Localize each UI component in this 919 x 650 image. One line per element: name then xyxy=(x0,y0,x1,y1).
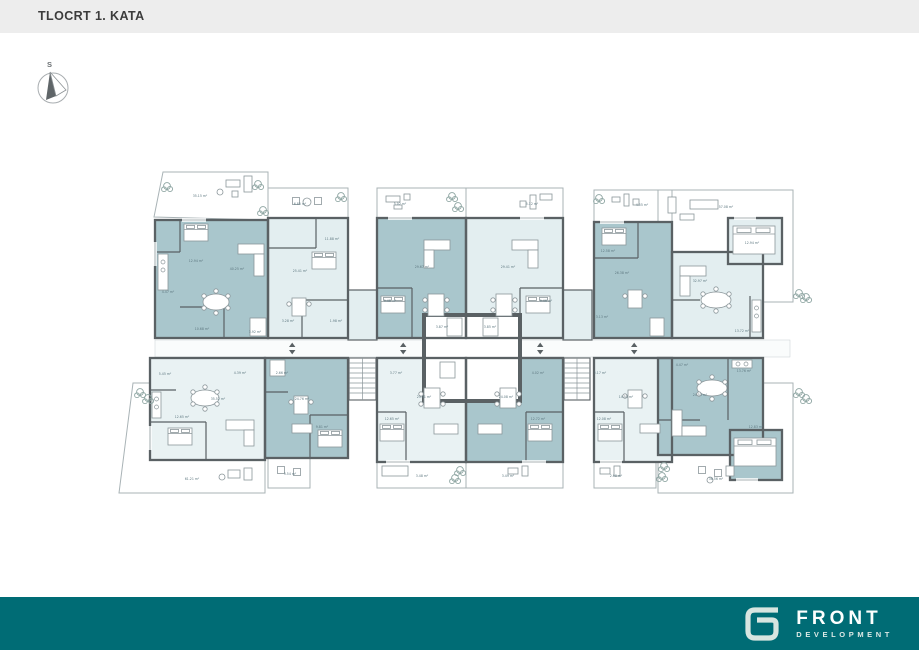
area-label: 6.85 m² xyxy=(294,202,307,206)
balcony-b4 xyxy=(466,462,563,488)
area-label: 4.55 m² xyxy=(636,203,649,207)
area-label: 36.56 m² xyxy=(709,477,724,481)
area-label: 57.08 m² xyxy=(719,205,734,209)
balcony-b5 xyxy=(594,462,656,488)
stairwell-right xyxy=(564,358,590,400)
area-label: 9.46 m² xyxy=(540,299,553,303)
north-compass: S xyxy=(38,60,68,103)
area-label: 35.15 m² xyxy=(193,194,208,198)
sofa xyxy=(434,424,458,434)
area-label: 40.25 m² xyxy=(230,267,245,271)
area-label: 26.38 m² xyxy=(615,271,630,275)
area-label: 32.97 m² xyxy=(693,279,708,283)
area-label: 12.83 m² xyxy=(749,425,764,429)
sofa xyxy=(292,424,312,433)
area-label: 3.87 m² xyxy=(436,325,449,329)
area-label: 3.49 m² xyxy=(502,474,515,478)
bed xyxy=(602,228,626,245)
area-label: 12.94 m² xyxy=(189,259,204,263)
compass-label: S xyxy=(47,60,52,69)
area-label: 11.88 m² xyxy=(325,237,340,241)
area-label: 13.76 m² xyxy=(737,369,752,373)
page-header: TLOCRT 1. KATA xyxy=(0,0,919,33)
bed xyxy=(733,226,775,254)
area-label: 9.48 m² xyxy=(384,299,397,303)
bed xyxy=(380,424,404,441)
area-label: 3.54 m² xyxy=(284,472,297,476)
kitchen xyxy=(732,360,752,368)
bed xyxy=(168,428,192,445)
area-label: 1.98 m² xyxy=(330,319,343,323)
area-label: 10.68 m² xyxy=(195,327,210,331)
area-label: 29.41 m² xyxy=(501,265,516,269)
bed xyxy=(598,424,622,441)
sofa xyxy=(640,424,660,433)
area-label: 12.65 m² xyxy=(175,415,190,419)
kitchen xyxy=(158,254,168,290)
floorplan-page: TLOCRT 1. KATA xyxy=(0,0,919,650)
area-label: 3.48 m² xyxy=(416,474,429,478)
area-label: 9.81 m² xyxy=(316,425,329,429)
page-title: TLOCRT 1. KATA xyxy=(38,0,145,33)
stairwell-left xyxy=(349,358,376,400)
area-label: 61.21 m² xyxy=(185,477,200,481)
area-label: 5.45 m² xyxy=(159,372,172,376)
area-label: 24.08 m² xyxy=(499,395,514,399)
area-label: 5.02 m² xyxy=(394,202,407,206)
area-label: 24.76 m² xyxy=(295,397,310,401)
balcony-a5 xyxy=(594,190,672,222)
area-label: 12.94 m² xyxy=(745,241,760,245)
area-label: 24.53 m² xyxy=(693,393,708,397)
area-label: 35.52 m² xyxy=(211,397,226,401)
footer-bar: FRONT DEVELOPMENT xyxy=(0,597,919,650)
area-label: 14.55 m² xyxy=(619,395,634,399)
floorplan-drawing: S xyxy=(0,0,919,650)
logo-monogram-icon xyxy=(743,605,783,643)
balcony-a4 xyxy=(466,188,563,218)
area-label: 3.28 m² xyxy=(282,319,295,323)
area-label: 3.85 m² xyxy=(484,325,497,329)
area-label: 12.08 m² xyxy=(597,417,612,421)
area-label: 12.58 m² xyxy=(601,249,616,253)
area-label: 2.98 m² xyxy=(610,474,623,478)
bed xyxy=(734,438,776,466)
area-label: 4.47 m² xyxy=(676,363,689,367)
company-logo: FRONT DEVELOPMENT xyxy=(743,605,893,643)
area-label: 25.41 m² xyxy=(293,269,308,273)
bed xyxy=(184,224,208,241)
sofa xyxy=(478,424,502,434)
area-label: 4.47 m² xyxy=(162,290,175,294)
connector-right-top xyxy=(563,290,592,340)
brand-name: FRONT xyxy=(796,609,893,628)
area-label: 3.13 m² xyxy=(596,315,609,319)
brand-text: FRONT DEVELOPMENT xyxy=(796,609,893,639)
bed xyxy=(528,424,552,441)
area-label: 12.72 m² xyxy=(531,417,546,421)
area-label: 3.92 m² xyxy=(249,330,262,334)
brand-tagline: DEVELOPMENT xyxy=(796,631,893,639)
kitchen xyxy=(152,392,161,418)
bed xyxy=(312,252,336,269)
area-label: 12.65 m² xyxy=(385,417,400,421)
area-label: 2.66 m² xyxy=(276,371,289,375)
bed xyxy=(318,430,342,447)
area-label: 3.17 m² xyxy=(594,371,607,375)
area-label: 4.39 m² xyxy=(234,371,247,375)
area-label: 5.12 m² xyxy=(526,202,539,206)
kitchen xyxy=(752,300,761,332)
connector-left-top xyxy=(348,290,377,340)
area-label: 13.72 m² xyxy=(735,329,750,333)
area-label: 29.67 m² xyxy=(415,265,430,269)
area-label: 23.91 m² xyxy=(417,395,432,399)
area-label: 4.02 m² xyxy=(532,371,545,375)
area-label: 3.77 m² xyxy=(390,371,403,375)
